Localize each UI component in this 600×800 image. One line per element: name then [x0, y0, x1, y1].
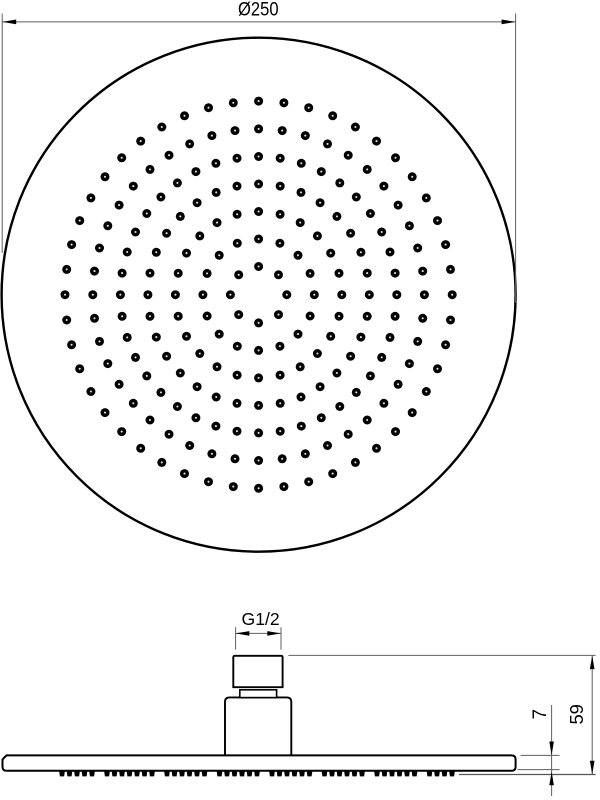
svg-text:7: 7	[530, 709, 551, 720]
svg-text:G1/2: G1/2	[242, 609, 280, 629]
svg-text:59: 59	[566, 704, 587, 724]
svg-text:Ø250: Ø250	[238, 0, 279, 21]
